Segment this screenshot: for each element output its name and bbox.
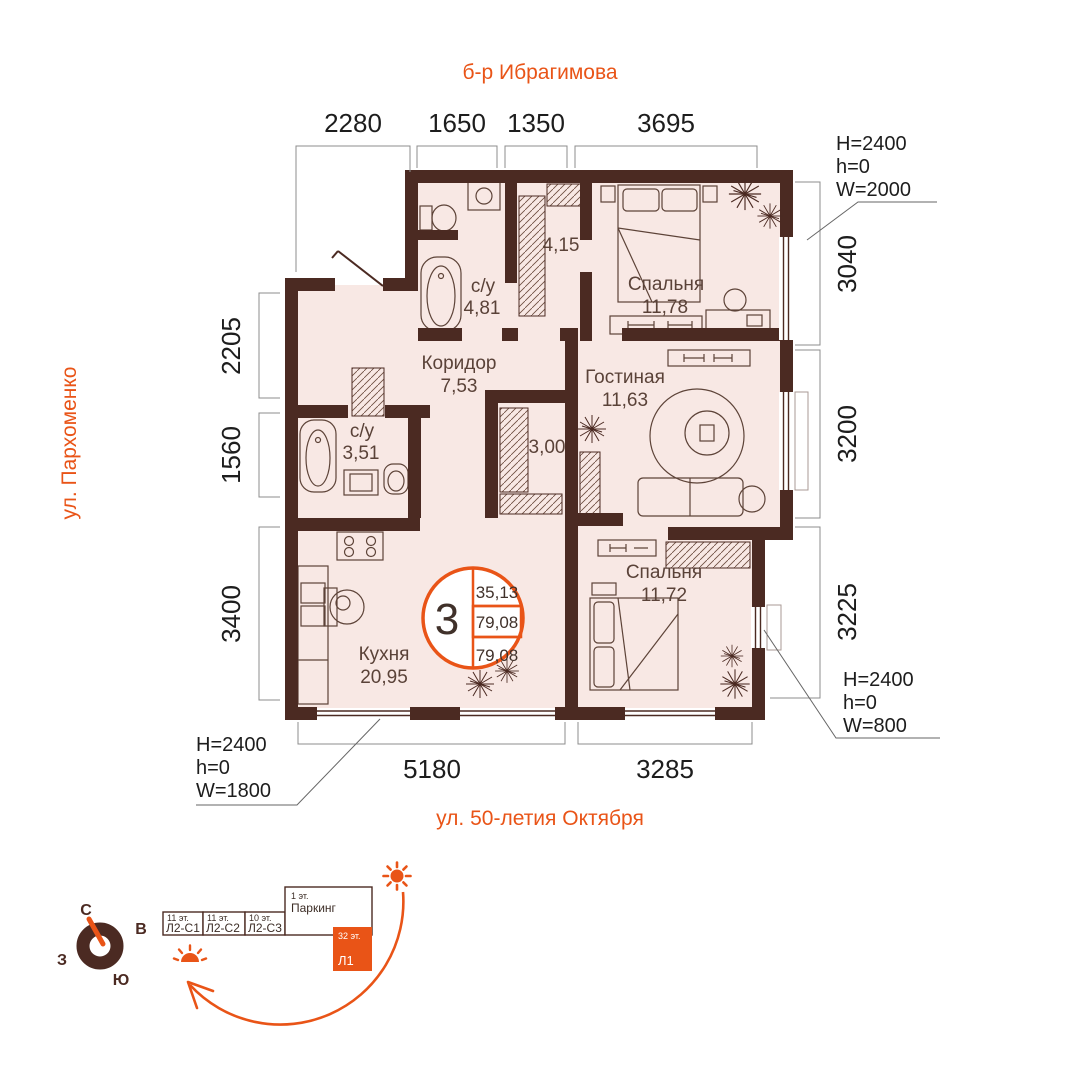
window-bottom-1 <box>317 708 410 719</box>
wardrobe-3-00-bottom <box>500 494 562 514</box>
room-name: с/у <box>350 421 375 442</box>
window-bottom-3 <box>625 708 715 719</box>
entrance-door <box>332 251 383 286</box>
svg-text:Л2-С2: Л2-С2 <box>206 921 240 935</box>
window-spec-top-right: H=2400 h=0 W=2000 <box>807 133 937 240</box>
dim-left-1: 2205 <box>216 317 246 375</box>
sun-icon <box>384 863 411 890</box>
dim-top-3: 1350 <box>507 108 565 138</box>
street-bottom: ул. 50-летия Октября <box>436 807 644 830</box>
compass-south: Ю <box>113 972 130 989</box>
sunset-icon <box>174 946 206 963</box>
window-bottom-2 <box>460 708 555 719</box>
svg-text:W=800: W=800 <box>843 715 907 737</box>
dim-left-2: 1560 <box>216 426 246 484</box>
svg-text:h=0: h=0 <box>836 156 870 178</box>
dim-top-2: 1650 <box>428 108 486 138</box>
dim-top-1: 2280 <box>324 108 382 138</box>
room-area: 3,51 <box>343 443 380 464</box>
svg-text:H=2400: H=2400 <box>836 133 907 155</box>
svg-text:W=1800: W=1800 <box>196 780 271 802</box>
compass-north: С <box>80 902 92 919</box>
room-name: Гостиная <box>585 367 665 388</box>
svg-text:Л1: Л1 <box>338 953 354 968</box>
window-bedroom2 <box>751 607 766 648</box>
room-area: 11,72 <box>641 585 687 606</box>
svg-text:Л2-С3: Л2-С3 <box>248 921 282 935</box>
room-name: Кухня <box>359 644 410 665</box>
room-area: 3,00 <box>529 437 566 458</box>
compass: С В З Ю <box>57 902 147 989</box>
dim-top-4: 3695 <box>637 108 695 138</box>
compass-west: З <box>57 952 67 969</box>
svg-text:32 эт.: 32 эт. <box>338 931 361 941</box>
floor-plan-drawing: Спальня 11,78 Гостиная 11,63 Спальня 11,… <box>0 0 1081 1081</box>
badge-area-total: 79,08 <box>476 613 519 632</box>
svg-text:h=0: h=0 <box>196 757 230 779</box>
area-badge: 3 35,13 79,08 79,08 <box>423 568 523 668</box>
compass-east: В <box>135 921 147 938</box>
window-top-right <box>779 237 794 340</box>
dim-bottom-2: 3285 <box>636 754 694 784</box>
room-area: 11,63 <box>602 390 648 411</box>
room-name: Спальня <box>628 274 704 295</box>
dim-right-1: 3040 <box>832 235 862 293</box>
svg-text:Паркинг: Паркинг <box>291 901 337 915</box>
wardrobe-3-00 <box>500 408 528 492</box>
window-spec-bottom-right: H=2400 h=0 W=800 <box>764 630 940 738</box>
svg-text:W=2000: W=2000 <box>836 179 911 201</box>
wardrobe-hall <box>352 368 384 416</box>
dim-left-3: 3400 <box>216 585 246 643</box>
badge-room-count: 3 <box>435 595 459 644</box>
window-living <box>779 392 794 490</box>
dim-bottom-1: 5180 <box>403 754 461 784</box>
room-area: 20,95 <box>360 667 408 688</box>
room-area: 4,81 <box>464 298 501 319</box>
svg-text:h=0: h=0 <box>843 692 877 714</box>
dim-right-3: 3225 <box>832 583 862 641</box>
room-name: с/у <box>471 276 496 297</box>
badge-area-living: 35,13 <box>476 583 519 602</box>
badge-area-reduced: 79,08 <box>476 646 519 665</box>
svg-text:Л2-С1: Л2-С1 <box>166 921 200 935</box>
room-name: Спальня <box>626 562 702 583</box>
street-left: ул. Пархоменко <box>58 367 81 520</box>
window-spec-bottom-left: H=2400 h=0 W=1800 <box>196 719 380 805</box>
balcony-rail-living <box>795 392 808 490</box>
room-name: Коридор <box>421 353 496 374</box>
dim-right-2: 3200 <box>832 405 862 463</box>
svg-text:H=2400: H=2400 <box>196 734 267 756</box>
leader-line <box>807 202 937 240</box>
street-top: б-р Ибрагимова <box>462 61 617 84</box>
balcony-rail-bedroom2 <box>767 605 781 650</box>
room-area: 4,15 <box>543 235 580 256</box>
floor-plan-page: Спальня 11,78 Гостиная 11,63 Спальня 11,… <box>0 0 1081 1081</box>
wardrobe-4-15 <box>519 196 545 316</box>
svg-text:1 эт.: 1 эт. <box>291 891 309 901</box>
room-area: 7,53 <box>441 376 478 397</box>
svg-text:H=2400: H=2400 <box>843 669 914 691</box>
room-area: 11,78 <box>642 297 688 318</box>
wardrobe-living <box>580 452 600 516</box>
